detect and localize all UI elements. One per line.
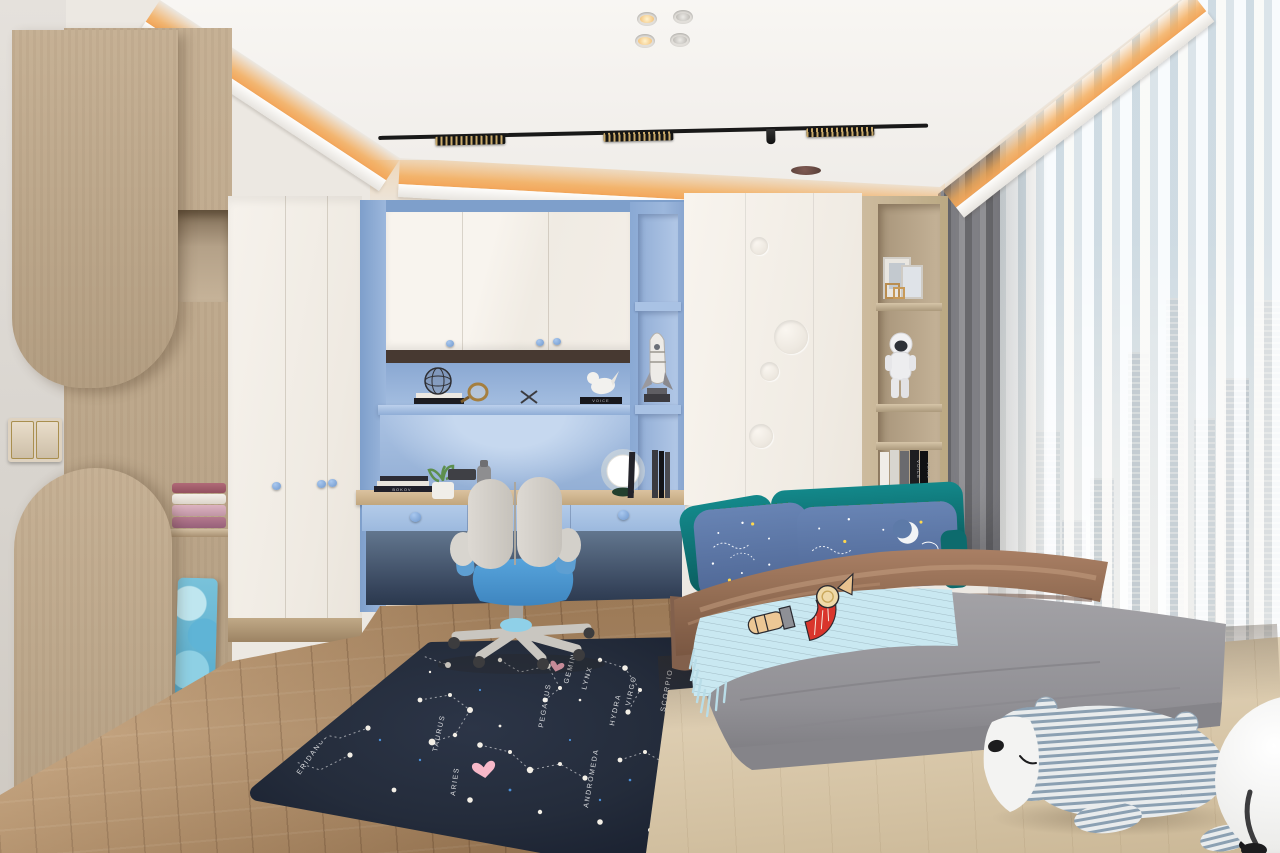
ceiling-fixture xyxy=(791,166,821,175)
svg-text:VOICE: VOICE xyxy=(916,460,921,479)
clothes-shelf xyxy=(170,529,228,537)
curved-panel-upper xyxy=(12,30,178,388)
astronaut-figurine xyxy=(885,333,916,398)
svg-text:BOKOV: BOKOV xyxy=(392,487,411,492)
door-seam xyxy=(745,193,746,505)
track-spot-module xyxy=(435,135,505,146)
chair-backrest xyxy=(450,477,581,569)
chair-base xyxy=(456,628,587,658)
circle-detail xyxy=(774,320,808,354)
switch-rocker xyxy=(36,421,59,459)
tall-white-cabinet xyxy=(684,193,862,505)
circle-detail xyxy=(760,362,779,381)
shelf-books: VOICE xyxy=(580,397,622,404)
track-spot-module xyxy=(603,131,673,142)
door-seam xyxy=(327,196,328,622)
track-spot-module xyxy=(806,127,874,138)
bird-figurine xyxy=(587,371,619,396)
circle-detail xyxy=(750,237,768,255)
svg-text:VOICE: VOICE xyxy=(592,398,609,403)
folded-clothes xyxy=(172,483,226,529)
picture-frames xyxy=(884,258,922,298)
rocket-model xyxy=(641,333,673,402)
wardrobe-knob xyxy=(317,480,326,488)
chair-collar xyxy=(500,618,532,632)
study-chair xyxy=(438,458,618,683)
track-cylinder-spot xyxy=(766,129,775,144)
wardrobe-knob xyxy=(328,479,337,487)
recessed-downlight xyxy=(673,10,693,24)
bedroom-render: VOICE BOKOV xyxy=(0,0,1280,853)
recessed-downlight xyxy=(635,34,655,48)
white-wardrobe xyxy=(228,196,362,622)
svg-text:VOICE: VOICE xyxy=(926,462,931,479)
recessed-downlight xyxy=(670,33,690,47)
desk-books: BOKOV xyxy=(374,476,432,492)
bookshelf-decor: VOICE VOICE xyxy=(875,195,953,507)
switch-rocker xyxy=(11,421,34,459)
wardrobe-knob xyxy=(272,482,281,490)
toys xyxy=(955,678,1280,853)
magnifier-ornament xyxy=(461,384,487,402)
door-seam xyxy=(813,193,814,505)
door-seam xyxy=(285,196,286,622)
globe-ornament xyxy=(414,368,464,404)
light-switch xyxy=(8,418,62,462)
circle-detail xyxy=(749,424,773,448)
scissors-ornament xyxy=(521,391,537,403)
recessed-downlight xyxy=(637,12,657,26)
open-niche xyxy=(175,210,229,302)
